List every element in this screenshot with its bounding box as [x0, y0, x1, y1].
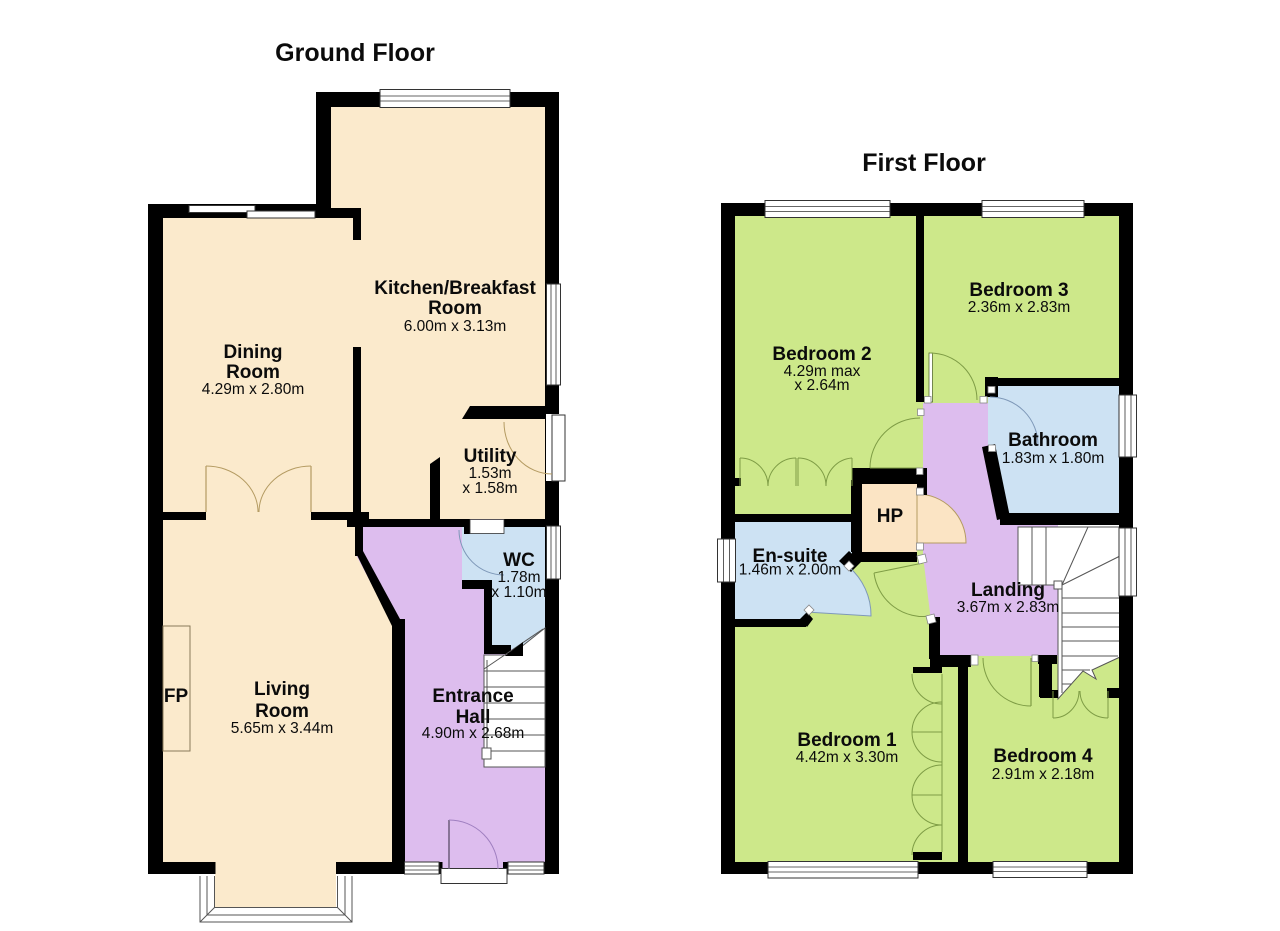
svg-text:Bedroom 4: Bedroom 4	[993, 746, 1093, 767]
svg-text:HP: HP	[877, 506, 904, 527]
svg-text:Bedroom 3: Bedroom 3	[969, 280, 1068, 301]
svg-text:x 1.58m: x 1.58m	[462, 480, 517, 497]
svg-text:5.65m x 3.44m: 5.65m x 3.44m	[231, 720, 334, 737]
svg-text:WC: WC	[503, 550, 535, 571]
svg-text:Landing: Landing	[971, 580, 1045, 601]
svg-text:Ground Floor: Ground Floor	[275, 39, 435, 67]
svg-text:3.67m x 2.83m: 3.67m x 2.83m	[957, 599, 1060, 616]
svg-text:Bedroom 1: Bedroom 1	[797, 730, 897, 751]
svg-text:Room: Room	[226, 362, 280, 383]
svg-text:Room: Room	[428, 298, 482, 319]
svg-text:Room: Room	[255, 701, 309, 722]
svg-text:FP: FP	[164, 686, 189, 707]
svg-text:Utility: Utility	[464, 446, 517, 467]
svg-text:Living: Living	[254, 679, 310, 700]
svg-text:1.83m x 1.80m: 1.83m x 1.80m	[1002, 450, 1105, 467]
svg-text:Bathroom: Bathroom	[1008, 430, 1098, 451]
svg-text:4.29m x 2.80m: 4.29m x 2.80m	[202, 381, 305, 398]
svg-text:Bedroom 2: Bedroom 2	[772, 344, 871, 365]
svg-text:First Floor: First Floor	[862, 149, 986, 177]
svg-text:2.36m x 2.83m: 2.36m x 2.83m	[968, 299, 1071, 316]
svg-text:4.42m x 3.30m: 4.42m x 3.30m	[796, 749, 899, 766]
svg-text:Dining: Dining	[223, 342, 282, 363]
svg-text:2.91m x 2.18m: 2.91m x 2.18m	[992, 766, 1095, 783]
svg-text:4.90m x 2.68m: 4.90m x 2.68m	[422, 725, 525, 742]
svg-text:1.46m x 2.00m: 1.46m x 2.00m	[739, 562, 842, 579]
svg-text:Entrance: Entrance	[432, 686, 513, 707]
svg-text:Kitchen/Breakfast: Kitchen/Breakfast	[374, 278, 536, 299]
svg-text:6.00m x 3.13m: 6.00m x 3.13m	[404, 318, 507, 335]
svg-text:x 2.64m: x 2.64m	[794, 377, 849, 394]
svg-text:x 1.10m: x 1.10m	[491, 584, 546, 601]
